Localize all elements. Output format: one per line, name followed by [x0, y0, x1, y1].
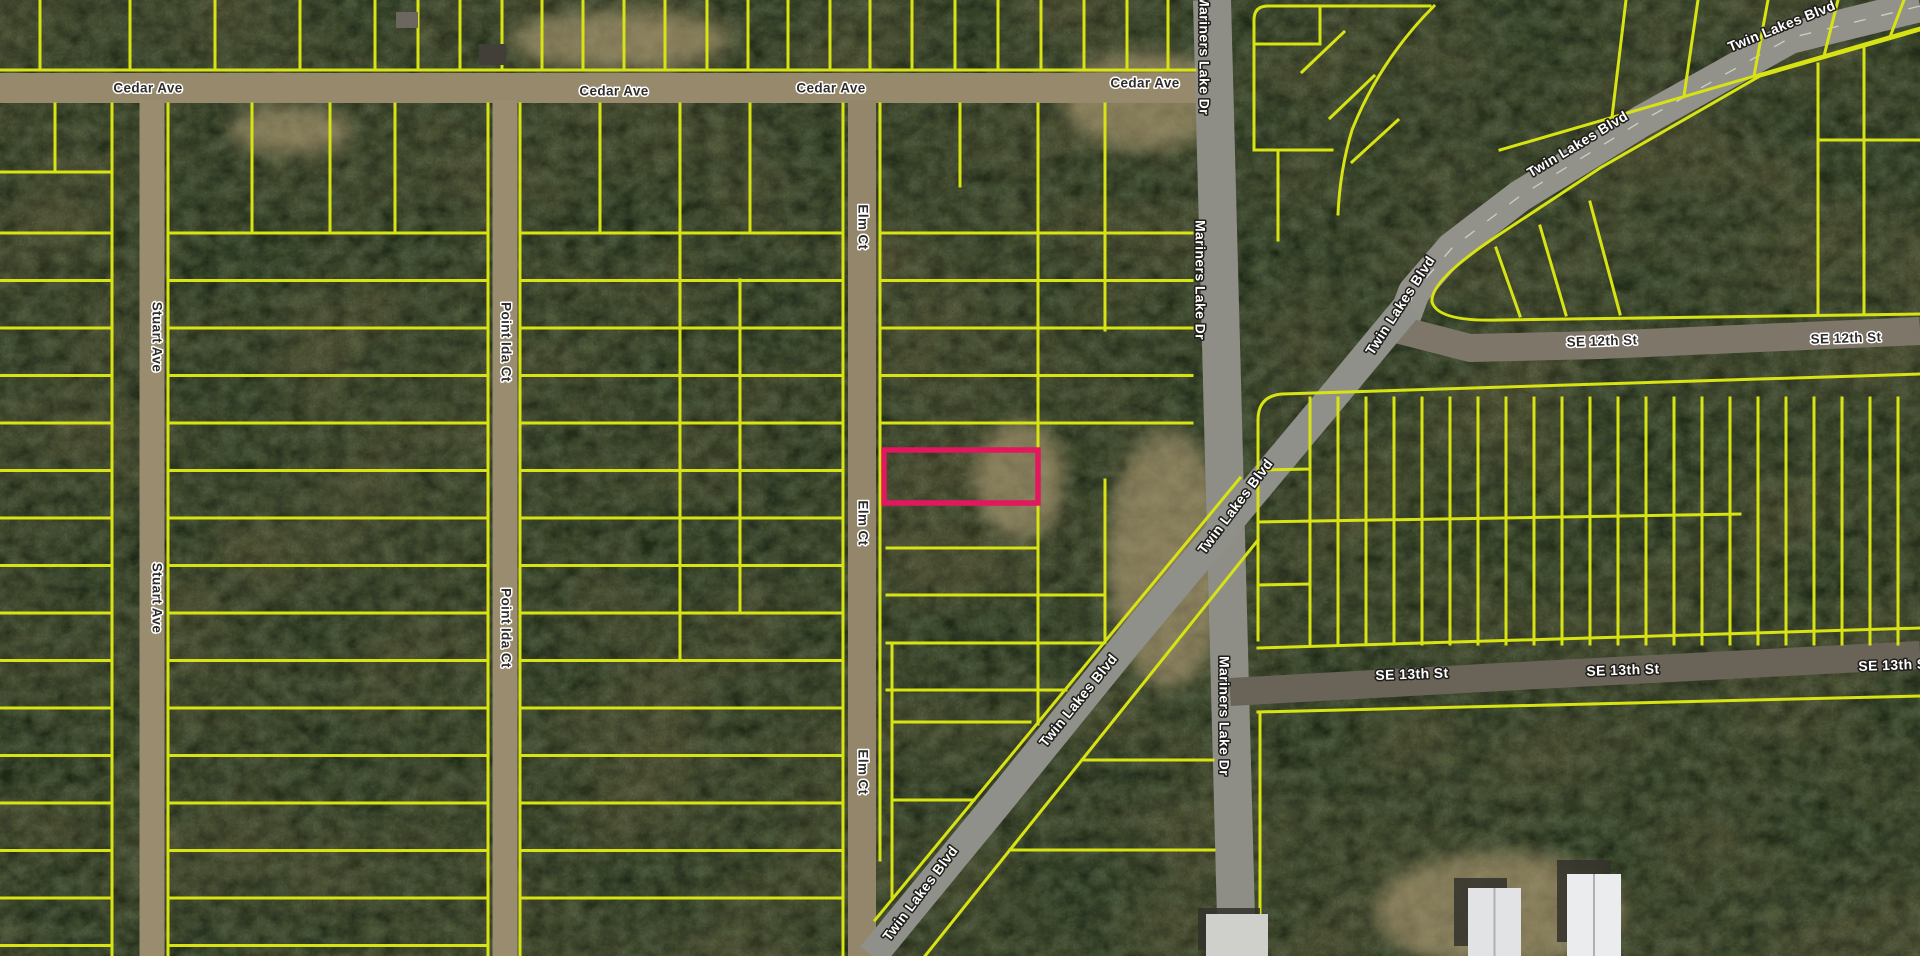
- clearing: [230, 105, 350, 155]
- road-label-elm-ct: Elm Ct: [855, 749, 870, 794]
- road-label-point-ida-ct: Point Ida Ct: [498, 302, 513, 382]
- building-trailer-cedar: [479, 44, 506, 65]
- road-label-cedar-ave: Cedar Ave: [1110, 76, 1179, 91]
- road-label-se-12th-st: SE 12th St: [1810, 329, 1881, 346]
- road-label-mariners-lake-dr: Mariners Lake Dr: [1196, 0, 1212, 115]
- road-label-elm-ct: Elm Ct: [855, 204, 870, 249]
- road-label-cedar-ave: Cedar Ave: [113, 81, 182, 96]
- road-mariners-lake-dr: [1212, 0, 1237, 956]
- road-label-se-13th-st: SE 13th St: [1586, 660, 1660, 679]
- clearing: [975, 420, 1065, 540]
- road-label-se-13th-st: SE 13th St: [1375, 664, 1449, 683]
- road-label-point-ida-ct: Point Ida Ct: [498, 588, 513, 668]
- parcel-line: [1258, 584, 1310, 585]
- road-label-stuart-ave: Stuart Ave: [149, 563, 164, 634]
- road-label-stuart-ave: Stuart Ave: [149, 302, 164, 373]
- road-label-mariners-lake-dr: Mariners Lake Dr: [1216, 656, 1232, 776]
- road-label-cedar-ave: Cedar Ave: [579, 84, 648, 99]
- building-house-mariners: [1206, 914, 1268, 956]
- road-label-elm-ct: Elm Ct: [855, 500, 870, 545]
- map-viewport[interactable]: Cedar AveCedar AveCedar AveCedar AveStua…: [0, 0, 1920, 956]
- road-label-se-13th-st: SE 13th St: [1858, 655, 1920, 674]
- road-label-mariners-lake-dr: Mariners Lake Dr: [1192, 220, 1208, 340]
- building-trailer-north: [396, 12, 418, 28]
- road-label-cedar-ave: Cedar Ave: [796, 81, 865, 96]
- road-label-se-12th-st: SE 12th St: [1566, 332, 1637, 349]
